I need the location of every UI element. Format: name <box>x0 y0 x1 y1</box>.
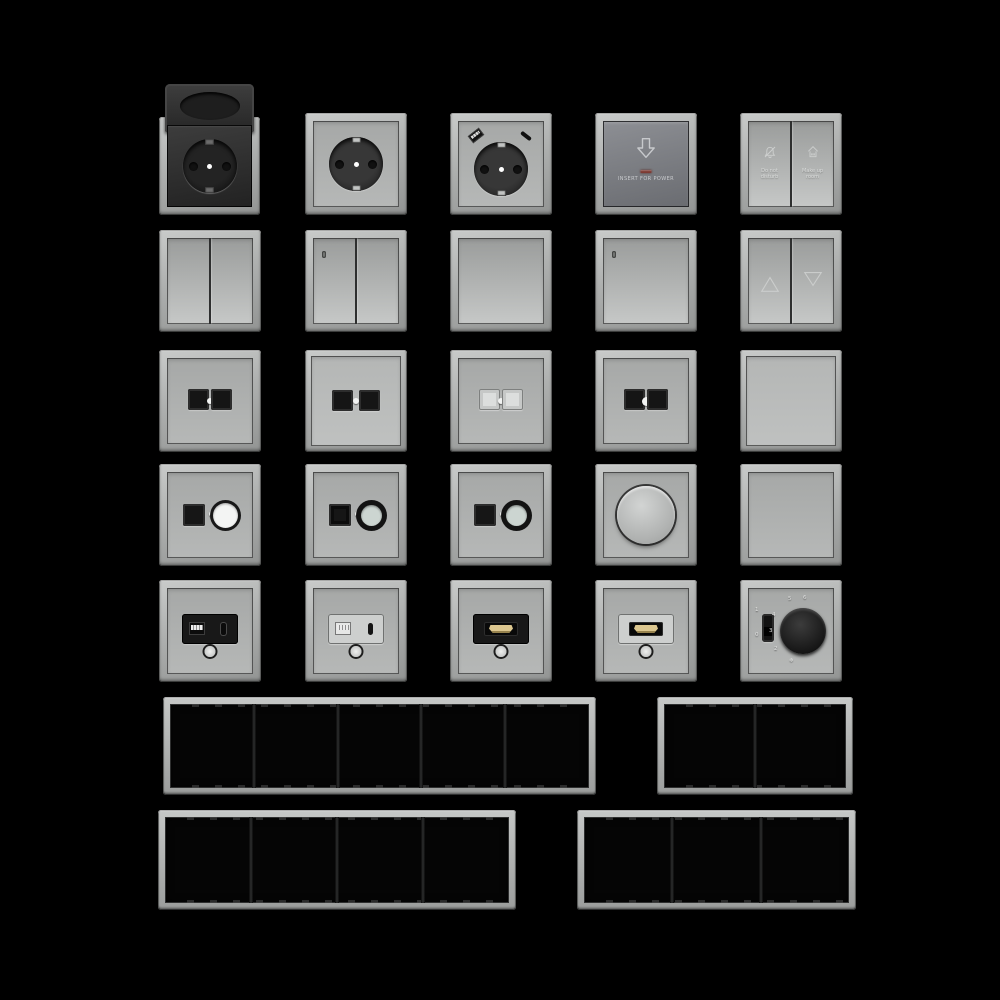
fixing-screw <box>351 646 362 657</box>
rocker-plate <box>313 238 399 324</box>
pin-hole <box>335 160 344 169</box>
fixing-screw <box>641 646 652 657</box>
schuko-socket-gray <box>305 113 407 215</box>
pin-hole <box>189 162 198 171</box>
center-dot <box>354 162 359 167</box>
usb-a-port-icon <box>468 128 485 144</box>
dial-6: 6 <box>803 595 807 601</box>
frame-divider <box>753 704 757 788</box>
double-rocker-switch-led <box>305 230 407 332</box>
mounting-tabs <box>590 817 843 820</box>
keycard-power-switch: INSERT FOR POWER <box>595 113 697 215</box>
rocker-divider <box>355 238 357 324</box>
usb-c-port <box>368 623 373 635</box>
center-dot <box>499 167 504 172</box>
socket-plate <box>313 121 399 207</box>
frame-openings <box>664 704 846 788</box>
frame-5-gang <box>163 697 596 795</box>
blank-plate <box>746 356 836 446</box>
coax-connector <box>361 505 382 526</box>
make-up-room-label: Make up room <box>791 168 834 180</box>
hdmi-slot <box>629 622 663 636</box>
dual-data-socket-white <box>450 350 552 452</box>
usb-c-port-icon <box>520 131 532 142</box>
hdmi-insert <box>473 614 529 644</box>
frame-divider <box>336 704 340 788</box>
switch-on-label: 1 <box>755 607 759 613</box>
indicator-led <box>612 251 616 258</box>
dial-2: 2 <box>774 646 778 652</box>
data-port <box>359 390 380 411</box>
coax-connector <box>506 505 527 526</box>
coax-connector <box>213 503 238 528</box>
arrow-down-icon <box>632 134 660 166</box>
combo-plate <box>458 472 544 558</box>
dimmer-knob <box>617 486 675 544</box>
triangle-up-icon <box>759 273 781 299</box>
frame-divider <box>421 817 425 903</box>
frost-icon: ❄ <box>789 658 794 664</box>
socket-plate <box>458 121 544 207</box>
dial-4: 4 <box>772 612 776 618</box>
hdmi-connector <box>489 625 513 633</box>
usb-charger-insert <box>328 614 384 644</box>
combo-plate <box>167 472 253 558</box>
data-port-shuttered <box>479 389 500 410</box>
hdmi-socket-black <box>450 580 552 682</box>
blind-up-rocker <box>748 238 791 324</box>
double-rocker-switch <box>159 230 261 332</box>
do-not-disturb-icon <box>762 144 778 164</box>
triangle-down-icon <box>802 268 824 294</box>
fixing-screw <box>496 646 507 657</box>
data-coax-combo-black-ring-2 <box>450 464 552 566</box>
status-led <box>641 170 652 173</box>
hdmi-slot <box>484 622 518 636</box>
usb-a-port <box>335 622 351 635</box>
usb-a-c-charger-gray <box>305 580 407 682</box>
frame-openings <box>170 704 589 788</box>
hdmi-socket-gray <box>595 580 697 682</box>
pin-hole <box>513 165 522 174</box>
schuko-outlet <box>329 137 383 191</box>
service-rockers: Do not disturb Make up room <box>748 121 834 207</box>
center-dot <box>207 164 212 169</box>
data-plate <box>603 358 689 444</box>
frame-divider <box>759 817 763 903</box>
schuko-outlet <box>183 139 237 193</box>
mounting-tabs <box>176 785 583 788</box>
schuko-socket-usb-charger <box>450 113 552 215</box>
data-port <box>183 504 205 526</box>
hdmi-plate <box>458 588 544 674</box>
mounting-tabs <box>176 704 583 707</box>
data-coax-combo-black-ring <box>305 464 407 566</box>
usb-a-contacts <box>471 130 481 139</box>
rocker-plate <box>458 238 544 324</box>
do-not-disturb-label: Do not disturb <box>748 168 791 180</box>
frame-3-gang <box>577 810 856 910</box>
keycard-label: INSERT FOR POWER <box>603 176 689 182</box>
charger-plate <box>313 588 399 674</box>
do-not-disturb-rocker: Do not disturb <box>748 121 791 207</box>
data-port <box>188 389 209 410</box>
rocker-plate <box>167 238 253 324</box>
charger-plate <box>167 588 253 674</box>
data-port <box>329 504 351 526</box>
usb-a-c-charger-black <box>159 580 261 682</box>
blank-cover-plate <box>740 464 842 566</box>
data-port <box>474 504 496 526</box>
blind-down-rocker <box>791 238 834 324</box>
hotel-service-double-switch: Do not disturb Make up room <box>740 113 842 215</box>
ground-clip <box>497 142 506 148</box>
switch-off-label: 0 <box>755 632 759 638</box>
flap-recess <box>180 92 240 120</box>
ground-clip <box>497 190 506 196</box>
data-plate <box>311 356 401 446</box>
indicator-led <box>322 251 326 258</box>
thermostat-knob <box>780 608 826 654</box>
usb-charger-insert <box>182 614 238 644</box>
rocker-plate <box>603 238 689 324</box>
thermostat-plate: 1 0 2 3 4 5 6 ❄ <box>748 588 834 674</box>
frame-divider <box>670 817 674 903</box>
blank-plate <box>748 472 834 558</box>
schuko-socket-hinged-cover <box>159 117 260 215</box>
blank-rocker-plate <box>740 350 842 452</box>
hdmi-plate <box>603 588 689 674</box>
frame-openings <box>584 817 849 903</box>
frame-4-gang <box>158 810 516 910</box>
keycard-plate: INSERT FOR POWER <box>603 121 689 207</box>
rocker-divider <box>209 238 211 324</box>
pin-hole <box>480 165 489 174</box>
rotary-dimmer <box>595 464 697 566</box>
mounting-tabs <box>590 900 843 903</box>
combo-plate <box>313 472 399 558</box>
data-plate <box>167 358 253 444</box>
fixing-screw <box>205 646 216 657</box>
pin-hole <box>222 162 231 171</box>
frame-2-gang <box>657 697 853 795</box>
ground-clip <box>205 187 214 193</box>
data-port <box>211 389 232 410</box>
make-up-room-icon <box>805 144 821 164</box>
dial-3: 3 <box>769 628 773 634</box>
data-port <box>647 389 668 410</box>
product-sheet: INSERT FOR POWER Do not disturb <box>0 0 1000 1000</box>
pin-hole <box>368 160 377 169</box>
data-coax-combo-white-ring <box>159 464 261 566</box>
rocker-plate <box>748 238 834 324</box>
usb-a-port <box>189 622 205 635</box>
data-plate <box>458 358 544 444</box>
frame-divider <box>249 817 253 903</box>
single-rocker-switch-led <box>595 230 697 332</box>
hdmi-connector <box>634 625 658 633</box>
thermostat-dial: 1 0 2 3 4 5 6 ❄ <box>740 580 842 682</box>
dual-data-socket-black-indicator <box>595 350 697 452</box>
blind-control-switch <box>740 230 842 332</box>
frame-divider <box>419 704 423 788</box>
make-up-room-rocker: Make up room <box>791 121 834 207</box>
socket-plate-black <box>167 125 252 207</box>
hdmi-insert <box>618 614 674 644</box>
schuko-outlet <box>474 142 528 196</box>
frame-divider <box>335 817 339 903</box>
frame-divider <box>252 704 256 788</box>
ground-clip <box>205 139 214 145</box>
usb-a-contacts <box>337 625 349 630</box>
data-port <box>332 390 353 411</box>
usb-a-contacts <box>191 625 203 630</box>
dimmer-plate <box>603 472 689 558</box>
frame-openings <box>165 817 509 903</box>
usb-c-port <box>220 622 227 636</box>
data-port-shuttered <box>502 389 523 410</box>
ground-clip <box>352 185 361 191</box>
ground-clip <box>352 137 361 143</box>
frame-divider <box>503 704 507 788</box>
dial-5: 5 <box>788 596 792 602</box>
dual-data-socket-black-raised <box>305 350 407 452</box>
dual-data-socket-black <box>159 350 261 452</box>
single-rocker-switch <box>450 230 552 332</box>
